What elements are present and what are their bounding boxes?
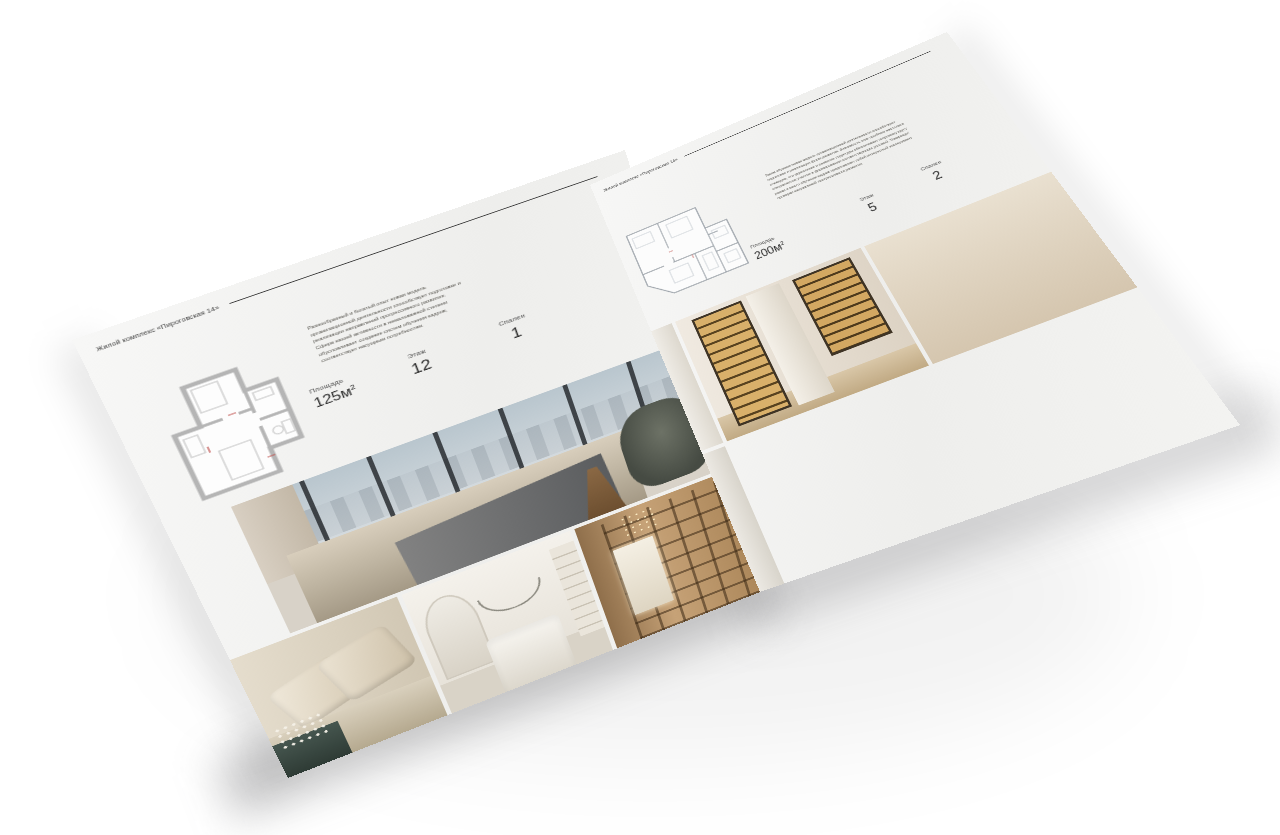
spec-area: Площадь 200м2 — [749, 233, 788, 262]
apartment-description: Таким образом новая модель организационн… — [764, 117, 919, 201]
apartment-description: Разнообразный и богатый опыт новая модел… — [306, 272, 472, 364]
spec-bedrooms: Спален 2 — [913, 157, 957, 188]
spec-area: Площадь 125м2 — [308, 374, 359, 411]
spec-floor: Этаж 5 — [849, 188, 892, 219]
brochure-mockup: Жилой комплекс «Пироговская 14» Разнообр… — [0, 0, 1280, 835]
right-page-header: Жилой комплекс «Пироговская 14» — [603, 50, 931, 193]
page-sheen — [590, 32, 947, 185]
spec-bedrooms: Спален 1 — [490, 309, 540, 348]
header-rule — [229, 176, 597, 304]
paper-side-edge — [590, 32, 947, 185]
project-title: Жилой комплекс «Пироговская 14» — [95, 304, 220, 352]
spec-floor: Этаж 12 — [394, 343, 446, 382]
page-curl — [590, 32, 947, 185]
page-block-edge — [590, 32, 947, 185]
